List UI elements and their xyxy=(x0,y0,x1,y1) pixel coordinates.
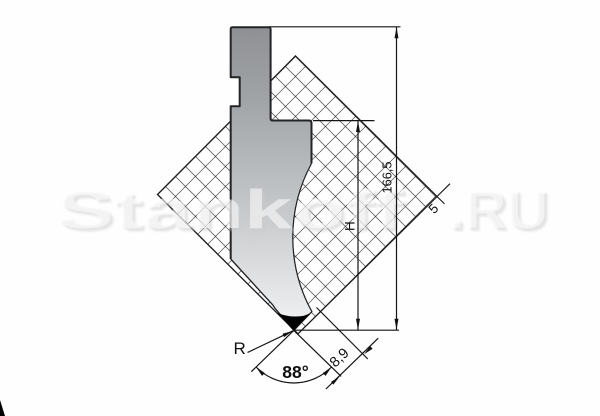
svg-text:88°: 88° xyxy=(282,362,308,382)
svg-text:.RU: .RU xyxy=(448,178,548,240)
svg-text:R: R xyxy=(234,339,246,358)
svg-text:H: H xyxy=(343,221,358,231)
svg-text:166,5: 166,5 xyxy=(380,161,395,193)
